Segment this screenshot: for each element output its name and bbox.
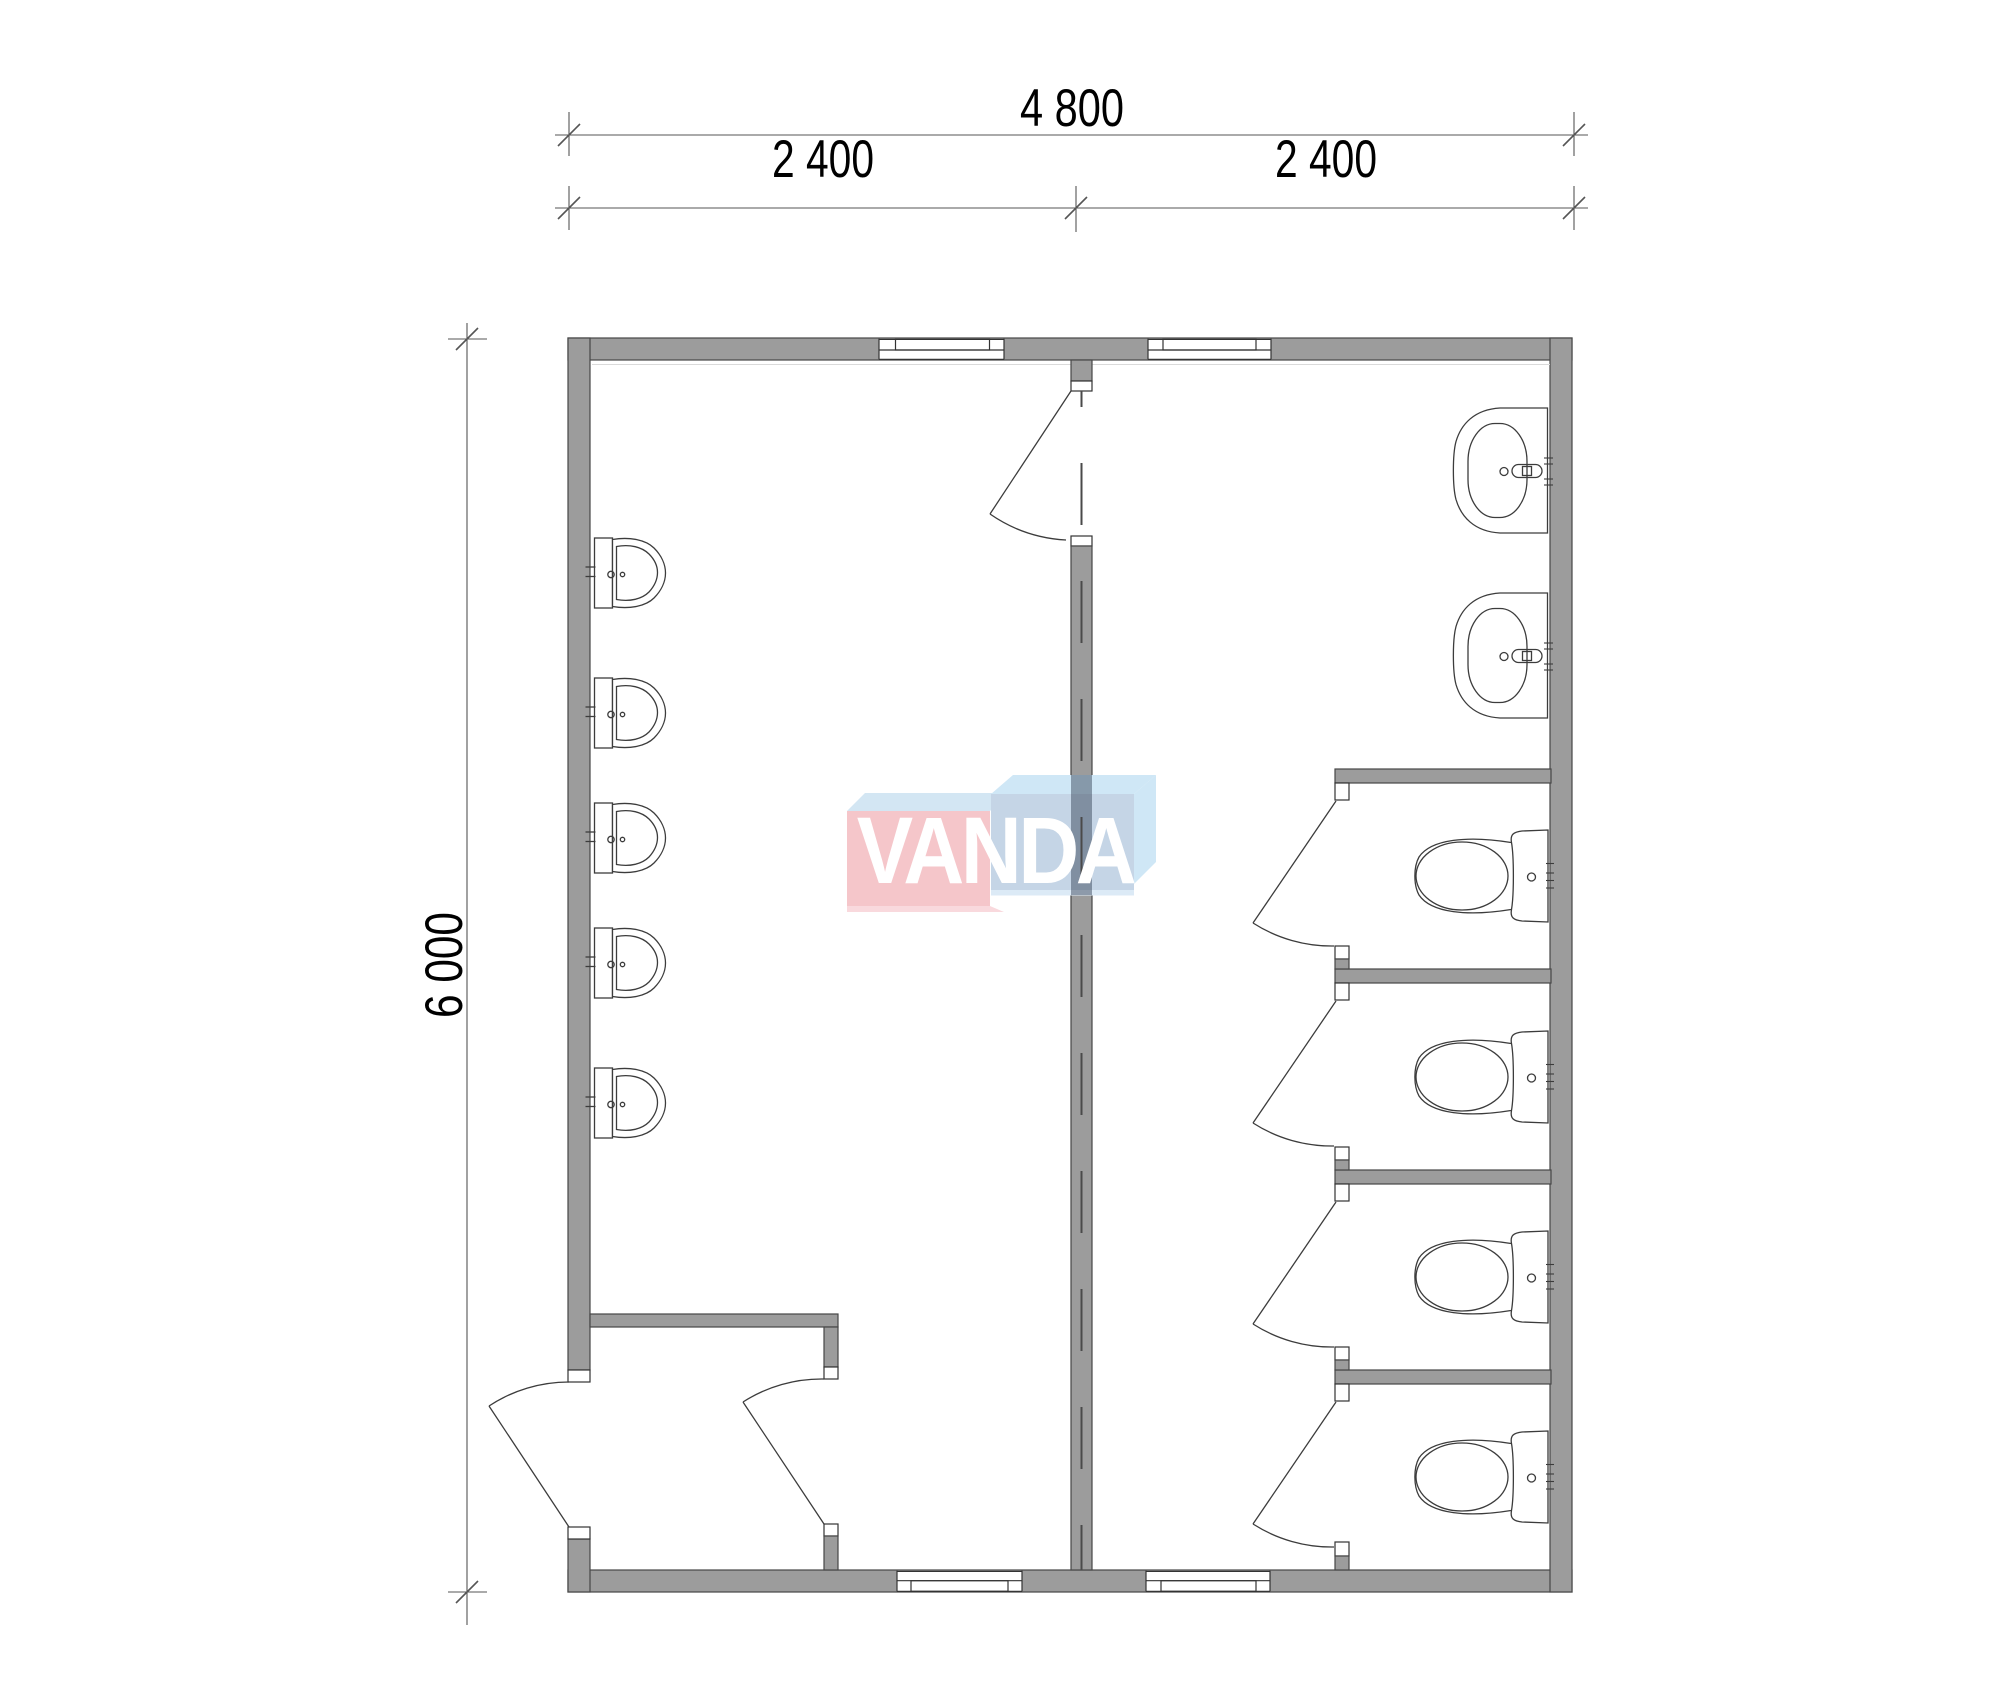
svg-text:2 400: 2 400 <box>772 130 874 189</box>
svg-text:VANDA: VANDA <box>857 798 1135 904</box>
svg-text:2 400: 2 400 <box>1275 130 1377 189</box>
svg-text:4 800: 4 800 <box>1020 79 1124 138</box>
svg-text:6 000: 6 000 <box>415 912 474 1018</box>
